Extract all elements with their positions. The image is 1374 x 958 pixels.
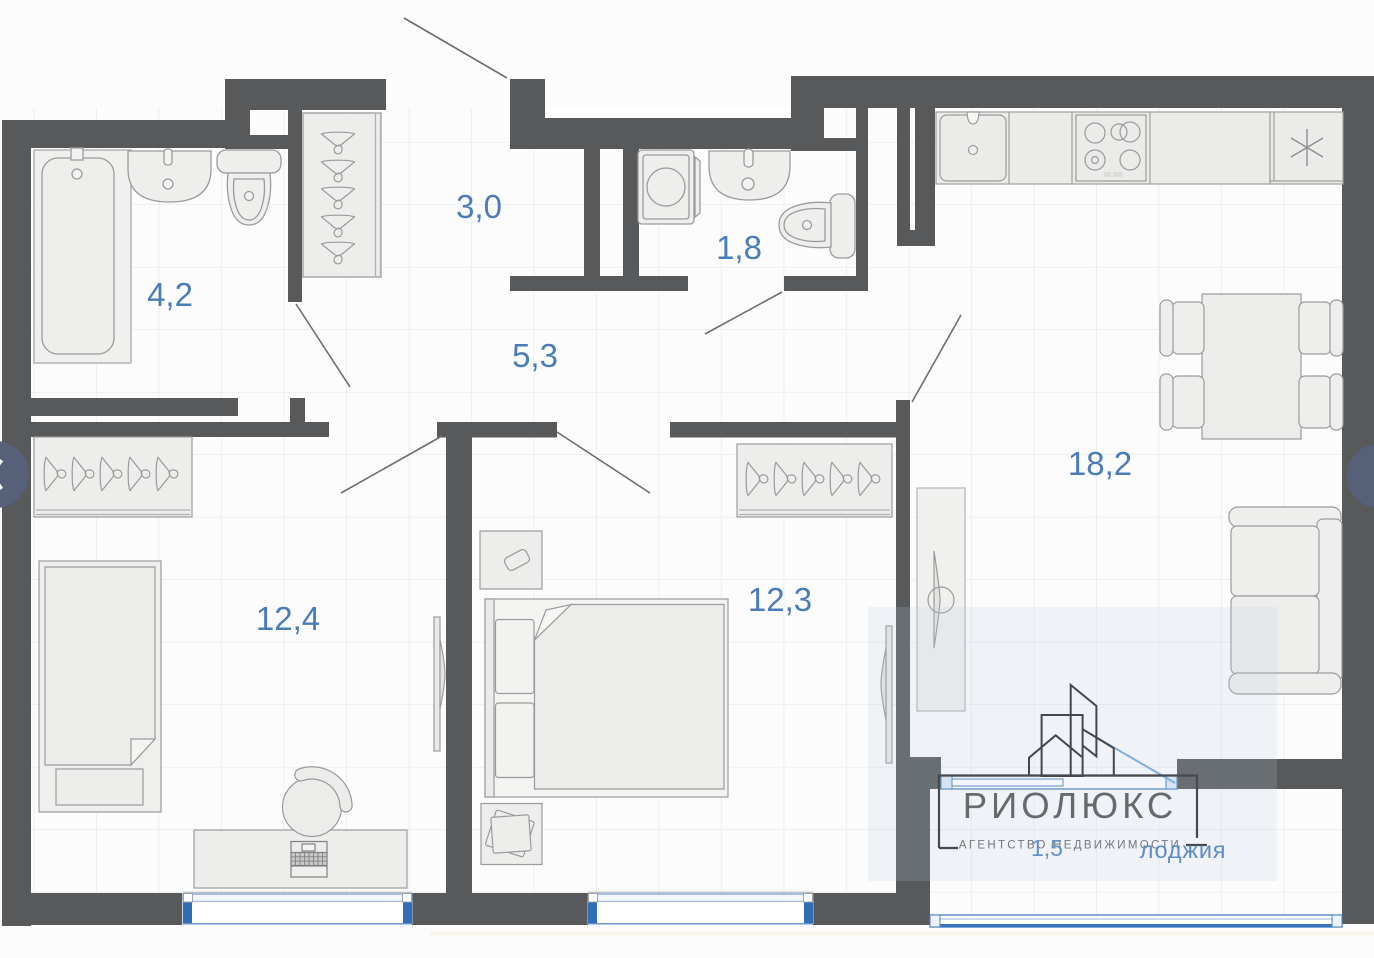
svg-text:1,8: 1,8 <box>716 229 762 266</box>
svg-text:12,3: 12,3 <box>748 581 812 618</box>
svg-text:12,4: 12,4 <box>256 600 320 637</box>
svg-text:5,3: 5,3 <box>512 337 558 374</box>
svg-text:4,2: 4,2 <box>147 276 193 313</box>
svg-text:РИОЛЮКС: РИОЛЮКС <box>963 785 1178 826</box>
svg-text:18,2: 18,2 <box>1068 445 1132 482</box>
svg-text:1,5: 1,5 <box>1031 835 1063 861</box>
svg-text:3,0: 3,0 <box>456 188 502 225</box>
svg-text:лоджия: лоджия <box>1140 837 1227 863</box>
